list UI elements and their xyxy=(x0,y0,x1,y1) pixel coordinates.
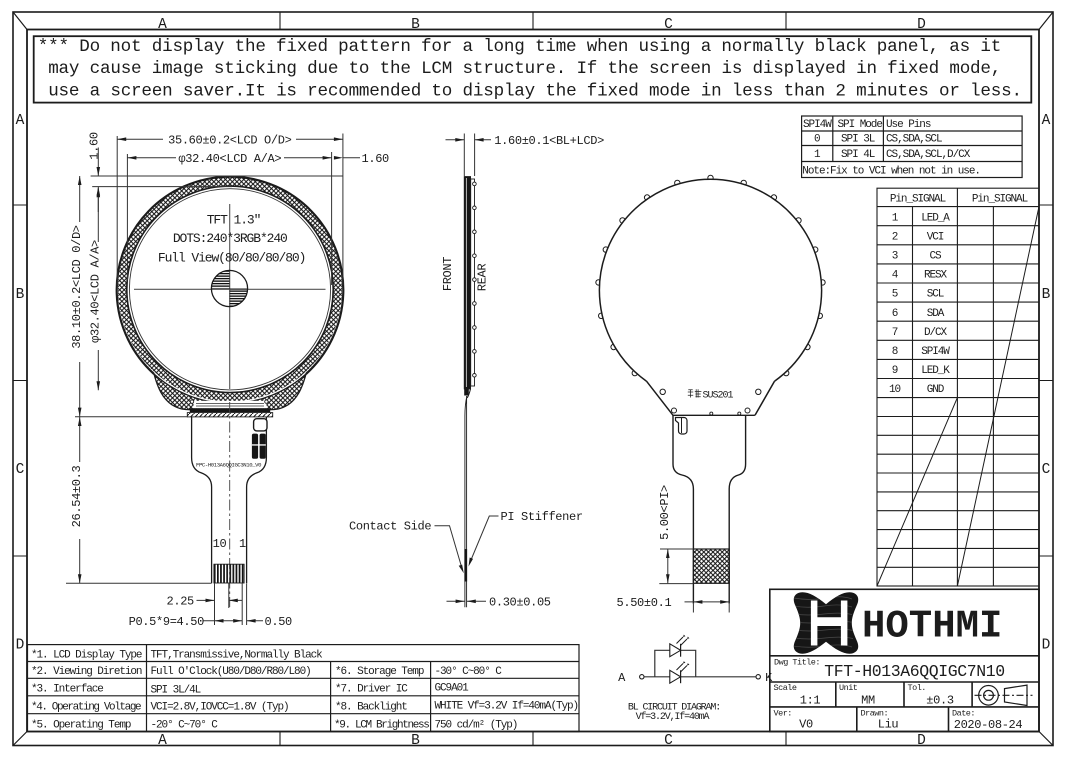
svg-text:Ver:: Ver: xyxy=(774,708,792,718)
svg-text:Scale: Scale xyxy=(774,683,797,693)
svg-text:35.60±0.2<LCD O/D>: 35.60±0.2<LCD O/D> xyxy=(168,133,291,147)
svg-text:D: D xyxy=(917,17,926,33)
svg-text:LED_A: LED_A xyxy=(921,212,950,224)
svg-text:D: D xyxy=(1042,638,1051,654)
svg-text:5: 5 xyxy=(892,289,898,301)
svg-text:7: 7 xyxy=(892,327,898,339)
svg-text:*8. Backlight: *8. Backlight xyxy=(335,702,407,714)
svg-text:FPC-H013A6QQIGC3N10_V0: FPC-H013A6QQIGC3N10_V0 xyxy=(196,462,262,469)
svg-text:B: B xyxy=(411,733,420,749)
svg-text:A: A xyxy=(158,733,167,749)
svg-text:use a screen saver.It is recom: use a screen saver.It is recommended to … xyxy=(48,82,1022,102)
svg-text:GC9A01: GC9A01 xyxy=(435,683,470,695)
svg-text:PI Stiffener: PI Stiffener xyxy=(501,510,583,524)
svg-text:VCI: VCI xyxy=(927,231,944,243)
svg-text:3: 3 xyxy=(892,251,898,263)
svg-text:2: 2 xyxy=(892,231,898,243)
svg-text:Pin_SIGNAL: Pin_SIGNAL xyxy=(972,194,1028,206)
svg-text:Full View(80/80/80/80): Full View(80/80/80/80) xyxy=(158,250,305,265)
svg-text:*9. LCM Brightness: *9. LCM Brightness xyxy=(334,719,429,731)
svg-text:9: 9 xyxy=(892,365,898,377)
svg-text:6: 6 xyxy=(892,308,898,320)
svg-text:Unit: Unit xyxy=(839,683,858,693)
svg-text:*6. Storage Temp: *6. Storage Temp xyxy=(335,666,424,678)
svg-text:SPI Mode: SPI Mode xyxy=(838,119,883,131)
svg-text:HOTHMI: HOTHMI xyxy=(862,605,1002,649)
svg-text:26.54±0.3: 26.54±0.3 xyxy=(70,466,84,528)
svg-text:Tol.: Tol. xyxy=(908,683,926,693)
svg-text:C: C xyxy=(16,462,25,478)
svg-text:1.60±0.1<BL+LCD>: 1.60±0.1<BL+LCD> xyxy=(494,134,604,148)
svg-text:REAR: REAR xyxy=(476,264,490,292)
svg-text:*3. Interface: *3. Interface xyxy=(31,684,103,696)
svg-text:Vf=3.2V,If=40mA: Vf=3.2V,If=40mA xyxy=(636,711,710,723)
svg-text:-30° C~80° C: -30° C~80° C xyxy=(435,666,503,678)
svg-text:V0: V0 xyxy=(799,718,813,732)
svg-text:B: B xyxy=(411,17,420,33)
svg-text:CS: CS xyxy=(929,251,942,263)
svg-text:may cause image sticking due t: may cause image sticking due to the LCM … xyxy=(48,59,1001,79)
svg-text:A: A xyxy=(158,17,167,33)
svg-text:SPI4W: SPI4W xyxy=(803,119,832,131)
svg-text:A: A xyxy=(1042,113,1051,129)
svg-text:P0.5*9=4.50: P0.5*9=4.50 xyxy=(129,615,205,629)
svg-text:2020-08-24: 2020-08-24 xyxy=(954,718,1023,732)
svg-text:8: 8 xyxy=(892,346,898,358)
svg-text:*** Do not display the fixed p: *** Do not display the fixed pattern for… xyxy=(38,37,1001,57)
svg-text:A: A xyxy=(16,113,25,129)
svg-text:750 cd/m² (Typ): 750 cd/m² (Typ) xyxy=(435,719,518,731)
svg-text:±0.3: ±0.3 xyxy=(926,694,954,708)
svg-text:C: C xyxy=(1042,462,1051,478)
svg-text:Note:Fix to VCI when not in us: Note:Fix to VCI when not in use. xyxy=(802,166,980,178)
svg-text:Date:: Date: xyxy=(952,708,975,718)
svg-text:1.60: 1.60 xyxy=(362,152,390,166)
svg-text:GND: GND xyxy=(927,384,945,396)
svg-text:RESX: RESX xyxy=(924,270,948,282)
svg-text:10: 10 xyxy=(889,384,901,396)
svg-text:1.60: 1.60 xyxy=(88,132,102,160)
svg-text:C: C xyxy=(664,733,673,749)
svg-text:φ32.40<LCD A/A>: φ32.40<LCD A/A> xyxy=(178,152,281,166)
svg-text:WHITE Vf=3.2V If=40mA(Typ): WHITE Vf=3.2V If=40mA(Typ) xyxy=(435,701,579,713)
svg-text:SCL: SCL xyxy=(927,289,944,301)
svg-text:SUS201: SUS201 xyxy=(703,390,734,401)
svg-text:D: D xyxy=(16,638,25,654)
svg-text:Use Pins: Use Pins xyxy=(886,119,931,131)
svg-text:SPI 4L: SPI 4L xyxy=(841,149,875,161)
svg-text:B: B xyxy=(1042,287,1051,303)
svg-text:0.30±0.05: 0.30±0.05 xyxy=(489,596,551,610)
svg-text:1:1: 1:1 xyxy=(800,694,821,708)
svg-text:*4. Operating Voltage: *4. Operating Voltage xyxy=(31,702,141,714)
svg-text:0: 0 xyxy=(814,134,820,146)
svg-text:*1. LCD Display Type: *1. LCD Display Type xyxy=(31,649,142,661)
svg-text:2.25: 2.25 xyxy=(167,595,195,609)
svg-text:1: 1 xyxy=(239,537,246,551)
svg-text:TFT 1.3″: TFT 1.3″ xyxy=(207,213,261,228)
svg-text:Full O'Clock(U80/D80/R80/L80): Full O'Clock(U80/D80/R80/L80) xyxy=(151,666,311,678)
svg-text:φ32.40<LCD A/A>: φ32.40<LCD A/A> xyxy=(89,240,103,343)
svg-text:*2. Viewing Diretion: *2. Viewing Diretion xyxy=(31,666,142,678)
svg-text:D: D xyxy=(917,733,926,749)
svg-text:B: B xyxy=(16,287,25,303)
svg-text:A: A xyxy=(618,671,626,685)
svg-text:Pin_SIGNAL: Pin_SIGNAL xyxy=(890,194,946,206)
svg-text:CS,SDA,SCL,D/CX: CS,SDA,SCL,D/CX xyxy=(886,149,971,161)
svg-text:Contact Side: Contact Side xyxy=(349,520,431,534)
svg-text:SPI 3L/4L: SPI 3L/4L xyxy=(151,685,201,697)
svg-text:SDA: SDA xyxy=(927,308,945,320)
svg-text:TFT-H013A6QQIGC7N10: TFT-H013A6QQIGC7N10 xyxy=(824,662,1005,681)
svg-text:VCI=2.8V,IOVCC=1.8V (Typ): VCI=2.8V,IOVCC=1.8V (Typ) xyxy=(151,702,289,714)
svg-text:SPI 3L: SPI 3L xyxy=(841,134,875,146)
svg-text:Dwg Title:: Dwg Title: xyxy=(774,658,820,668)
svg-text:*7. Driver IC: *7. Driver IC xyxy=(335,684,408,696)
svg-text:10: 10 xyxy=(213,537,227,551)
svg-text:38.10±0.2<LCD 0/D>: 38.10±0.2<LCD 0/D> xyxy=(70,225,84,348)
svg-text:*5. Operating Temp: *5. Operating Temp xyxy=(31,719,131,731)
svg-text:0.50: 0.50 xyxy=(265,615,293,629)
svg-text:Liu: Liu xyxy=(878,718,899,732)
svg-text:D/CX: D/CX xyxy=(924,327,948,339)
svg-text:5.50±0.1: 5.50±0.1 xyxy=(617,596,672,610)
svg-text:CS,SDA,SCL: CS,SDA,SCL xyxy=(886,134,942,146)
svg-text:FRONT: FRONT xyxy=(441,257,455,291)
svg-text:C: C xyxy=(664,17,673,33)
svg-text:LED_K: LED_K xyxy=(921,365,950,377)
svg-text:TFT,Transmissive,Normally Blac: TFT,Transmissive,Normally Black xyxy=(151,649,324,661)
svg-text:SPI4W: SPI4W xyxy=(921,346,950,358)
svg-text:MM: MM xyxy=(861,694,875,708)
svg-text:5.00<PI>: 5.00<PI> xyxy=(658,485,672,540)
svg-text:DOTS:240*3RGB*240: DOTS:240*3RGB*240 xyxy=(173,231,287,246)
svg-text:-20° C~70° C: -20° C~70° C xyxy=(151,719,219,731)
